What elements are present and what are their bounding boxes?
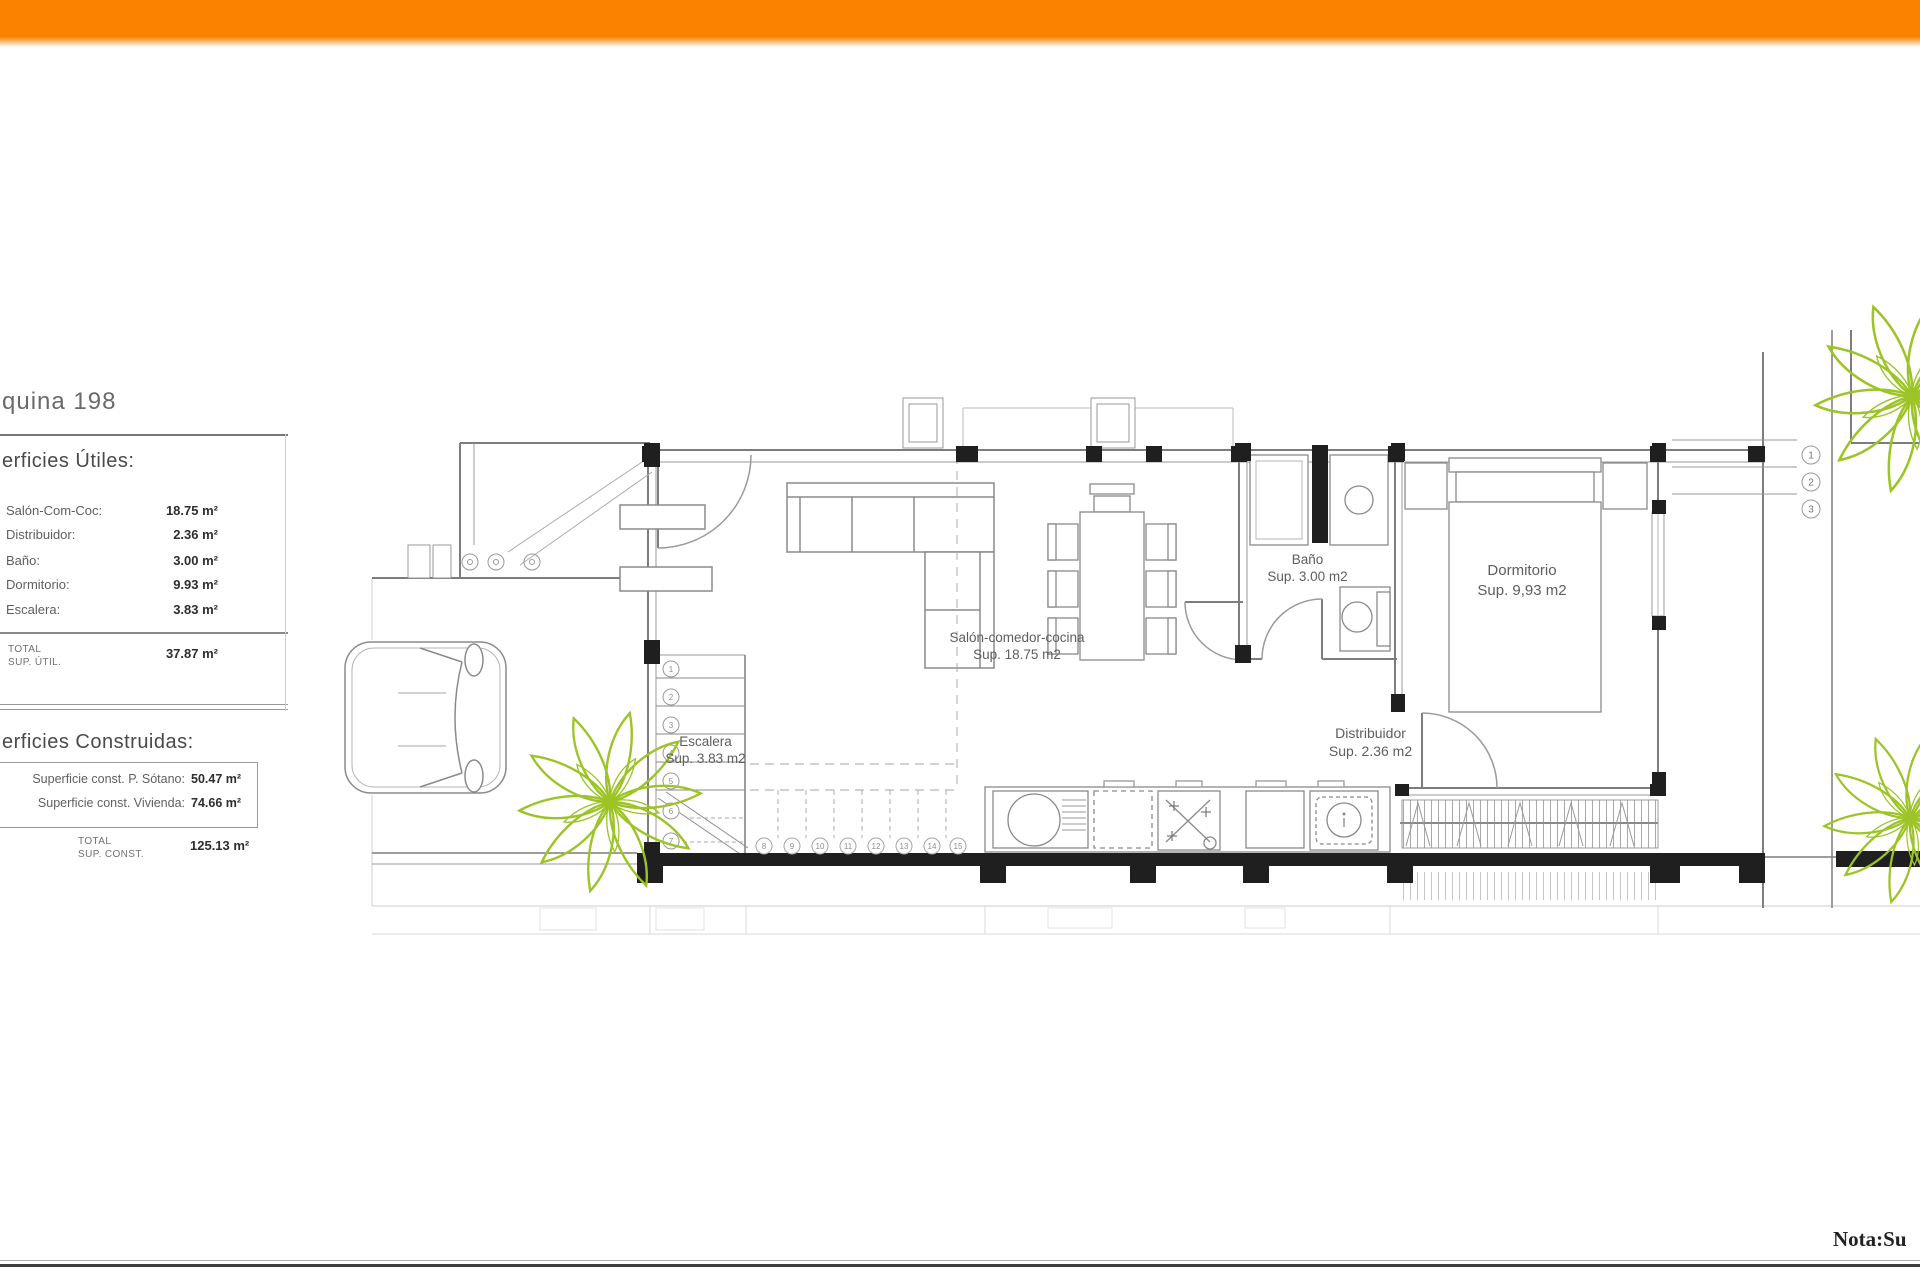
room-name: Salón-comedor-cocina <box>897 629 1137 646</box>
total-value: 125.13 m² <box>190 838 249 853</box>
utiles-row: Distribuidor: 2.36 m² <box>6 527 218 547</box>
utiles-row: Baño: 3.00 m² <box>6 553 218 573</box>
project-title: quina 198 <box>2 388 116 416</box>
room-label-bano: Baño Sup. 3.00 m2 <box>1240 551 1375 585</box>
footer-line <box>0 1260 1920 1261</box>
construidas-heading: erficies Construidas: <box>2 731 194 754</box>
svg-text:11: 11 <box>844 842 853 851</box>
room-area: Sup. 2.36 m2 <box>1293 742 1448 760</box>
room-label-salon: Salón-comedor-cocina Sup. 18.75 m2 <box>897 629 1137 663</box>
divider <box>0 434 288 436</box>
row-value: 18.75 m² <box>166 503 218 518</box>
total-label: SUP. ÚTIL. <box>8 657 61 668</box>
svg-text:3: 3 <box>1808 505 1814 516</box>
row-value: 2.36 m² <box>173 527 218 542</box>
svg-text:14: 14 <box>928 842 937 851</box>
utiles-heading: erficies Útiles: <box>2 450 134 473</box>
kitchen-counter <box>985 781 1390 852</box>
divider <box>0 709 288 710</box>
utiles-row: Salón-Com-Coc: 18.75 m² <box>6 503 218 523</box>
svg-text:3: 3 <box>669 721 674 730</box>
room-area: Sup. 3.00 m2 <box>1240 568 1375 585</box>
shaft-boxes <box>903 398 1135 448</box>
divider <box>0 632 288 634</box>
svg-text:6: 6 <box>669 807 674 816</box>
room-name: Dormitorio <box>1437 561 1607 581</box>
bedroom-window <box>1652 512 1664 616</box>
room-name: Distribuidor <box>1293 724 1448 742</box>
utiles-row: Dormitorio: 9.93 m² <box>6 577 218 597</box>
svg-text:2: 2 <box>1808 478 1814 489</box>
footer-note: Nota:Su <box>1833 1227 1920 1252</box>
room-label-escalera: Escalera Sup. 3.83 m2 <box>628 733 783 767</box>
utiles-row: Escalera: 3.83 m² <box>6 602 218 622</box>
room-area: Sup. 3.83 m2 <box>628 750 783 767</box>
row-value: 50.47 m² <box>191 772 261 786</box>
room-name: Baño <box>1240 551 1375 568</box>
total-label: TOTAL <box>78 836 111 847</box>
row-label: Superficie const. P. Sótano: <box>0 772 185 786</box>
row-label: Salón-Com-Coc: <box>6 503 102 518</box>
row-value: 3.83 m² <box>173 602 218 617</box>
room-label-dormitorio: Dormitorio Sup. 9,93 m2 <box>1437 561 1607 601</box>
room-area: Sup. 18.75 m2 <box>897 646 1137 663</box>
row-value: 3.00 m² <box>173 553 218 568</box>
footer-line <box>0 1264 1920 1267</box>
svg-text:2: 2 <box>669 693 674 702</box>
svg-text:13: 13 <box>900 842 909 851</box>
row-value: 9.93 m² <box>173 577 218 592</box>
total-label: TOTAL <box>8 644 41 655</box>
row-label: Escalera: <box>6 602 60 617</box>
total-label: SUP. CONST. <box>78 849 144 860</box>
svg-text:10: 10 <box>816 842 825 851</box>
room-area: Sup. 9,93 m2 <box>1437 581 1607 601</box>
svg-text:12: 12 <box>872 842 881 851</box>
louver-bands <box>1400 800 1658 900</box>
row-label: Baño: <box>6 553 40 568</box>
svg-text:1: 1 <box>1808 451 1814 462</box>
construidas-box: Superficie const. P. Sótano: 50.47 m² Su… <box>0 762 258 828</box>
car-drawing <box>345 642 506 793</box>
svg-text:15: 15 <box>954 842 963 851</box>
svg-text:9: 9 <box>790 842 795 851</box>
row-label: Dormitorio: <box>6 577 70 592</box>
garage-fixtures <box>408 545 540 578</box>
divider <box>285 434 286 711</box>
room-label-distribuidor: Distribuidor Sup. 2.36 m2 <box>1293 724 1448 760</box>
svg-text:5: 5 <box>669 777 674 786</box>
svg-text:1: 1 <box>669 665 674 674</box>
room-name: Escalera <box>628 733 783 750</box>
total-value: 37.87 m² <box>120 646 218 661</box>
row-label: Superficie const. Vivienda: <box>0 796 185 810</box>
level-markers: 1 2 3 <box>1802 446 1820 518</box>
row-value: 74.66 m² <box>191 796 261 810</box>
divider <box>0 704 288 705</box>
row-label: Distribuidor: <box>6 527 75 542</box>
svg-text:8: 8 <box>762 842 767 851</box>
